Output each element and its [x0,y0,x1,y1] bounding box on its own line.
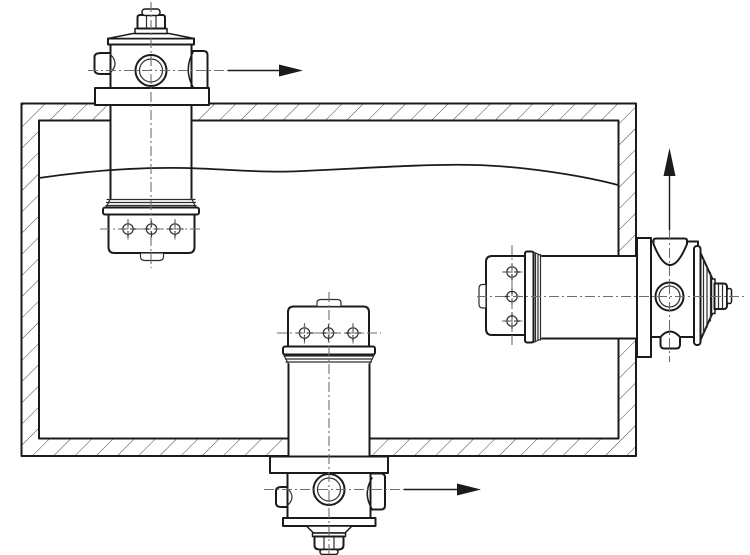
arrow-head [664,148,676,176]
head-outlet-block [192,51,208,88]
top-filter-head [95,9,210,105]
top-filter-bypass-tab [141,253,164,261]
side-filter-element-endcap [486,256,525,335]
technical-drawing-canvas [0,0,750,555]
fluid-level-line [39,165,618,185]
top-filter [95,9,210,261]
tank-side-opening [617,257,639,338]
mounting-flange [637,238,651,357]
arrow-head [279,65,303,77]
flow-arrows [228,65,676,496]
head-outlet-block [371,474,386,510]
bottom-outlet-arrow [404,484,481,496]
top-outlet-arrow [228,65,303,77]
side-filter [479,238,732,357]
side-outlet-arrow [664,148,676,230]
reservoir-tank [22,101,639,458]
side-filter-head [637,238,732,357]
mounting-flange [95,88,209,105]
side-filter-element-ribs [534,252,543,343]
hydraulic-tank-filter-drawing [0,0,750,555]
head-bottom-tab [661,332,681,349]
arrow-head [457,484,481,496]
